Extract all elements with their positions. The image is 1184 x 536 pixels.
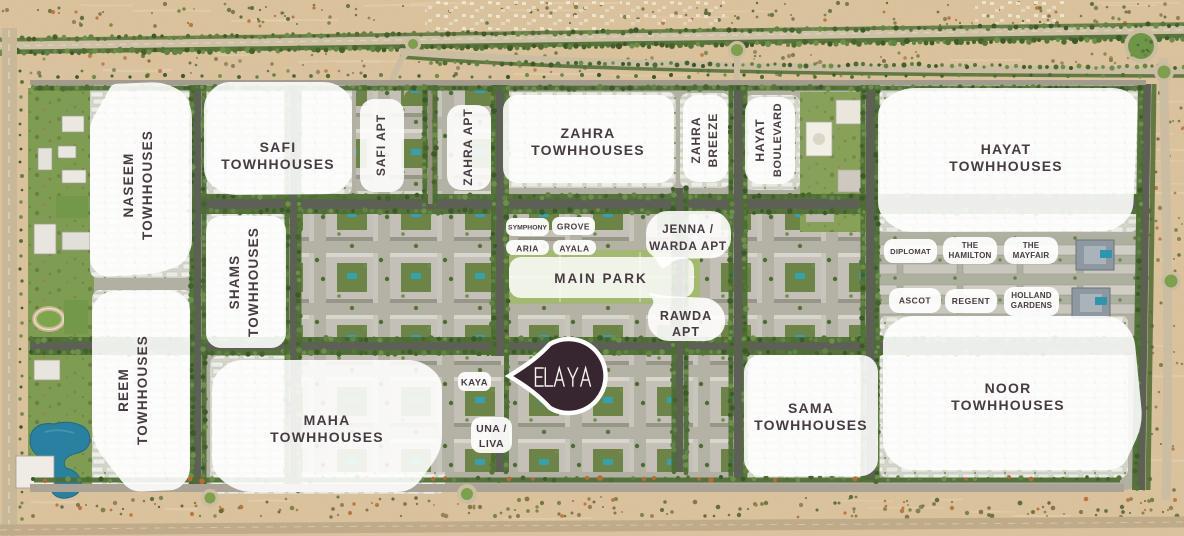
svg-text:SAMA: SAMA — [788, 400, 834, 416]
svg-text:SAFI: SAFI — [260, 139, 297, 155]
svg-text:BOULEVARD: BOULEVARD — [772, 103, 784, 177]
svg-text:DIPLOMAT: DIPLOMAT — [890, 247, 931, 256]
svg-text:ASCOT: ASCOT — [899, 296, 932, 306]
svg-text:TOWHHOUSES: TOWHHOUSES — [949, 158, 1063, 174]
svg-text:SHAMS: SHAMS — [227, 255, 242, 310]
svg-text:AYALA: AYALA — [559, 244, 589, 254]
svg-text:HOLLAND: HOLLAND — [1011, 291, 1052, 300]
svg-text:SYMPHONY: SYMPHONY — [508, 225, 547, 232]
svg-text:TOWHHOUSES: TOWHHOUSES — [270, 429, 384, 445]
svg-text:JENNA /: JENNA / — [662, 222, 714, 236]
svg-text:NASEEM: NASEEM — [121, 153, 136, 218]
svg-text:LIVA: LIVA — [479, 438, 504, 450]
svg-text:GROVE: GROVE — [557, 222, 590, 232]
svg-text:WARDA APT: WARDA APT — [649, 239, 727, 253]
svg-text:UNA /: UNA / — [476, 423, 507, 435]
svg-text:TOWHHOUSES: TOWHHOUSES — [140, 130, 155, 240]
svg-text:SAFI APT: SAFI APT — [374, 114, 388, 176]
svg-text:GARDENS: GARDENS — [1011, 301, 1053, 310]
svg-text:RAWDA: RAWDA — [660, 309, 712, 323]
svg-text:REGENT: REGENT — [952, 296, 991, 306]
svg-text:TOWHHOUSES: TOWHHOUSES — [951, 397, 1065, 413]
svg-text:HAMILTON: HAMILTON — [948, 251, 991, 260]
svg-text:TOWHHOUSES: TOWHHOUSES — [246, 227, 261, 337]
svg-text:TOWHHOUSES: TOWHHOUSES — [221, 156, 335, 172]
svg-text:ZAHRA APT: ZAHRA APT — [461, 108, 475, 185]
svg-text:HAYAT: HAYAT — [981, 141, 1032, 157]
svg-text:KAYA: KAYA — [461, 378, 488, 389]
svg-text:ZAHRA: ZAHRA — [561, 125, 616, 141]
svg-text:TOWHHOUSES: TOWHHOUSES — [135, 335, 150, 445]
svg-text:MAIN PARK: MAIN PARK — [554, 271, 648, 286]
svg-text:THE: THE — [1023, 241, 1040, 250]
svg-text:APT: APT — [672, 325, 700, 339]
svg-text:MAHA: MAHA — [304, 412, 351, 428]
svg-text:MAYFAIR: MAYFAIR — [1013, 251, 1050, 260]
svg-text:ARIA: ARIA — [516, 244, 539, 254]
svg-text:TOWHHOUSES: TOWHHOUSES — [531, 142, 645, 158]
svg-text:THE: THE — [962, 241, 979, 250]
svg-text:BREEZE: BREEZE — [706, 113, 720, 168]
svg-text:REEM: REEM — [116, 368, 131, 412]
svg-text:HAYAT: HAYAT — [753, 118, 767, 161]
svg-text:TOWHHOUSES: TOWHHOUSES — [754, 417, 868, 433]
svg-text:NOOR: NOOR — [985, 380, 1032, 396]
svg-text:ZAHRA: ZAHRA — [689, 117, 703, 164]
